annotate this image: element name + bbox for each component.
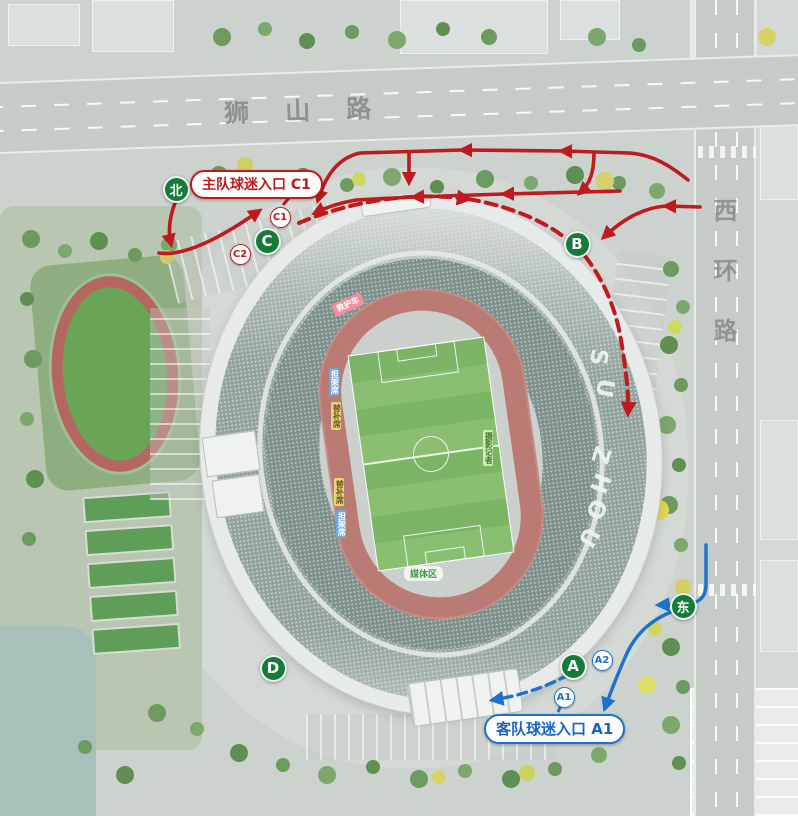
building	[92, 0, 174, 52]
gate-b-marker: B	[564, 231, 591, 258]
road-label-xihuan: 西环路	[706, 198, 741, 378]
gate-a2-marker: A2	[592, 650, 613, 671]
trees-yellow	[0, 0, 14, 14]
compass-north-marker: 北	[163, 176, 190, 203]
crosswalk	[698, 584, 756, 596]
gate-a-marker: A	[560, 653, 587, 680]
away-entrance-text: 客队球迷入口 A1	[496, 720, 613, 738]
building	[8, 4, 80, 46]
building	[760, 560, 798, 652]
stand-letter: S	[585, 348, 612, 367]
gate-d-marker: D	[260, 655, 287, 682]
road-shishan: 狮山路	[0, 54, 798, 155]
stadium-area-map: 狮山路 西环路 S U Z H O	[0, 0, 798, 816]
bench-tag: 替补席	[334, 478, 344, 506]
building	[400, 0, 548, 54]
road-label-shishan: 狮山路	[224, 88, 408, 130]
gate-c1-marker: C1	[270, 207, 291, 228]
crosswalk	[698, 146, 756, 158]
stretcher-tag: 担架席	[336, 510, 346, 538]
west-structure	[212, 474, 265, 518]
canal-water	[0, 626, 96, 816]
away-entrance-label: 客队球迷入口 A1	[484, 714, 625, 744]
home-entrance-label: 主队球迷入口 C1	[190, 170, 323, 199]
sports-courts	[82, 491, 182, 665]
building	[560, 0, 620, 40]
photographers-tag: 摄影记者	[483, 430, 493, 466]
west-structure	[202, 430, 261, 477]
media-zone-tag: 媒体区	[404, 566, 443, 581]
bench-tag: 替补席	[331, 402, 341, 430]
building	[760, 420, 798, 540]
gate-c-marker: C	[254, 228, 281, 255]
gate-c2-marker: C2	[230, 244, 251, 265]
home-entrance-text: 主队球迷入口 C1	[202, 177, 311, 193]
stretcher-tag: 担架席	[329, 368, 339, 396]
compass-east-marker: 东	[670, 593, 697, 620]
gate-a1-marker: A1	[554, 687, 575, 708]
